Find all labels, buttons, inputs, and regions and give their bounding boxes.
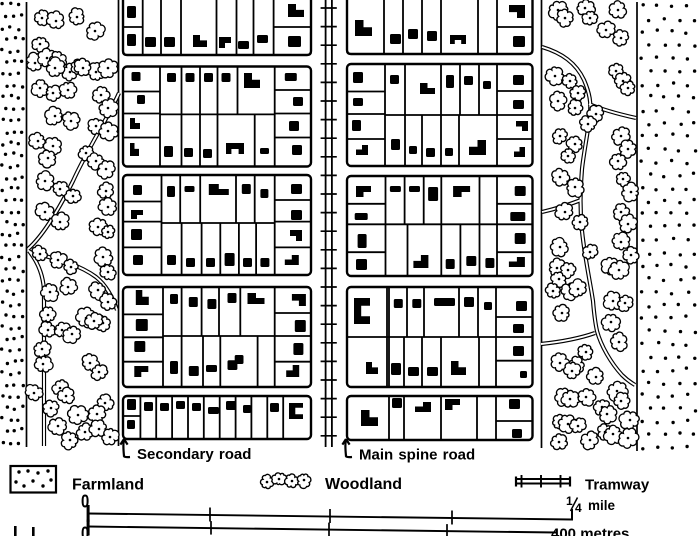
svg-text:mile: mile [588, 498, 616, 513]
svg-text:Secondary road: Secondary road [137, 446, 251, 463]
svg-text:0: 0 [81, 523, 89, 536]
svg-text:Main spine road: Main spine road [359, 447, 475, 464]
svg-text:1: 1 [566, 494, 573, 508]
svg-text:400 metres: 400 metres [551, 526, 629, 537]
svg-text:Tramway: Tramway [585, 477, 650, 494]
svg-text:Woodland: Woodland [325, 476, 402, 493]
svg-text:4: 4 [575, 501, 582, 515]
